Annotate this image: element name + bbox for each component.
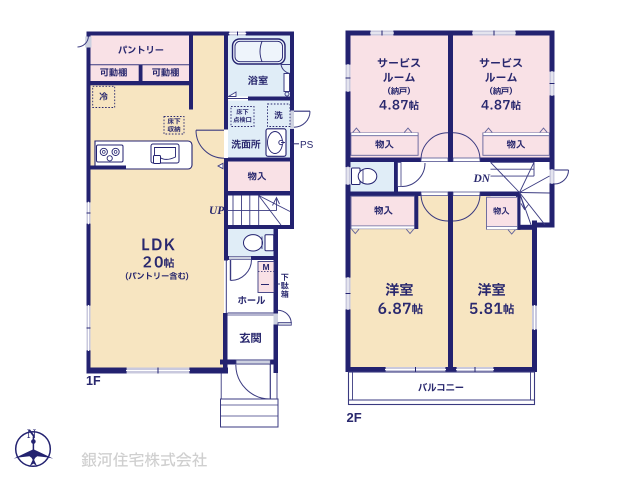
svg-text:PS: PS	[300, 140, 314, 151]
svg-text:M: M	[263, 262, 270, 272]
svg-text:2F: 2F	[347, 410, 362, 425]
svg-text:DN: DN	[473, 173, 491, 185]
svg-text:1F: 1F	[86, 374, 101, 388]
svg-text:N: N	[27, 427, 36, 441]
svg-text:UP: UP	[209, 205, 225, 217]
